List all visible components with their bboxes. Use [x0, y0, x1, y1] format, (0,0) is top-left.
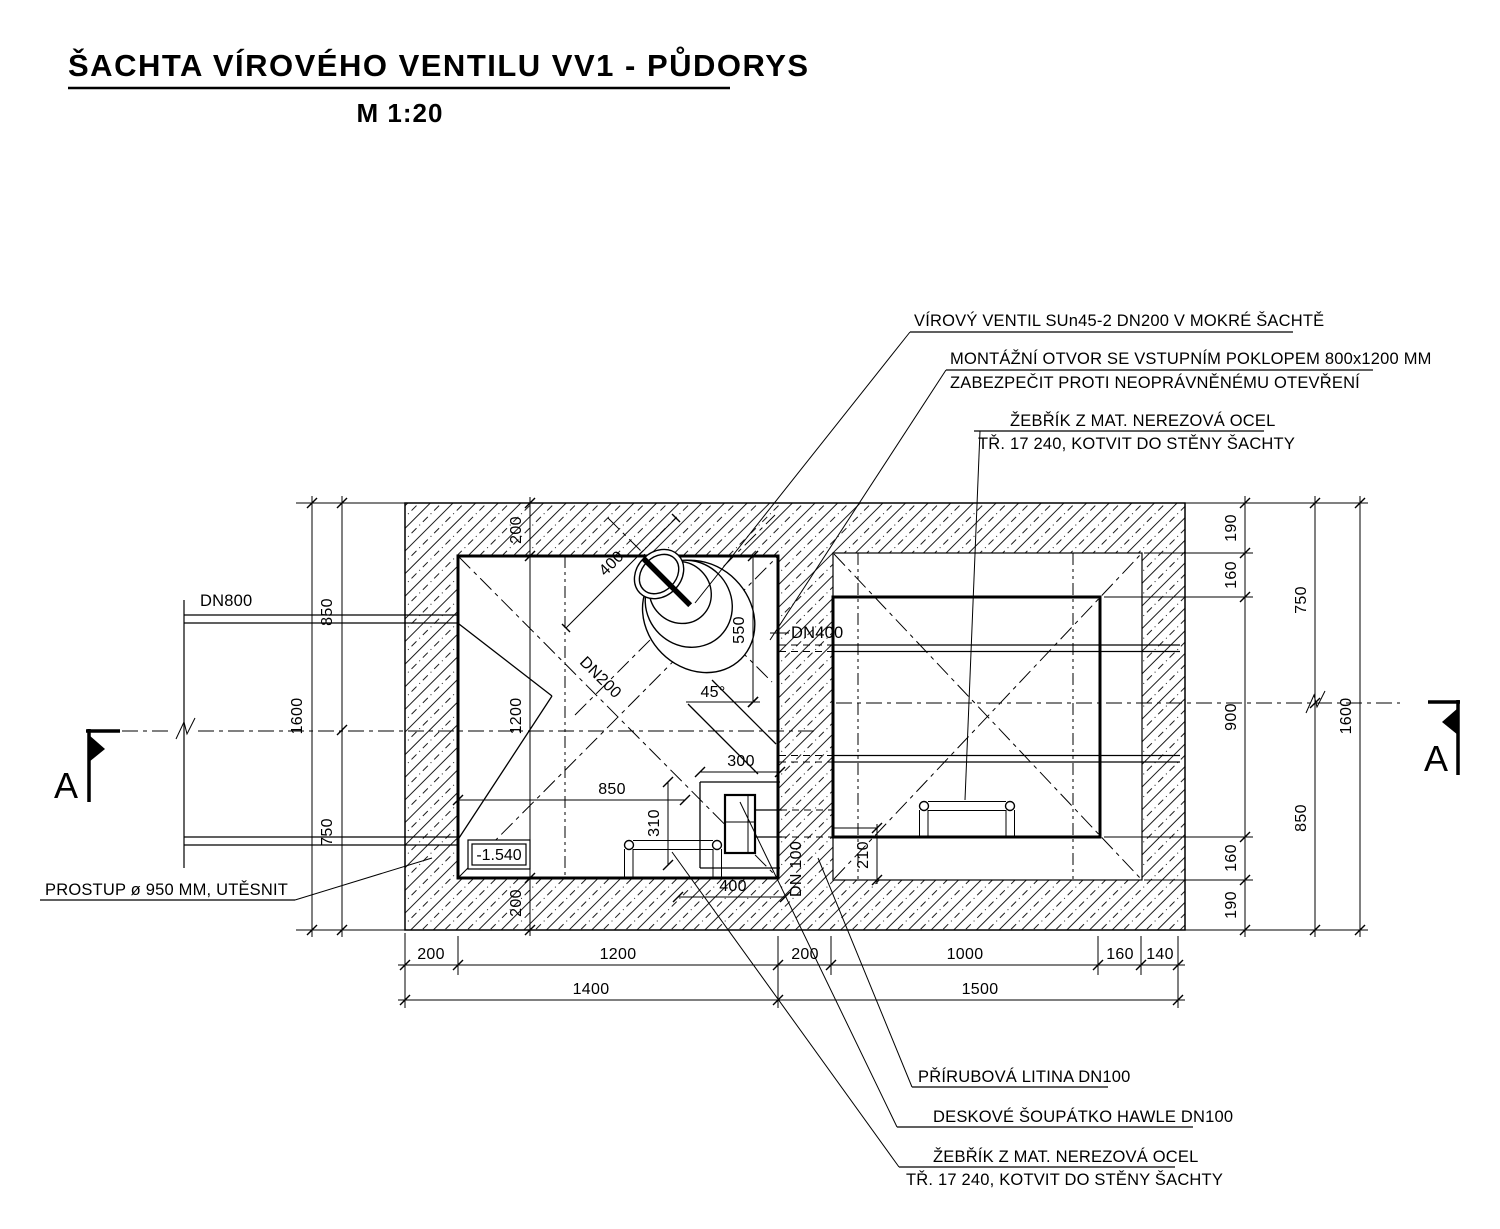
dim-angle-45: 45°	[700, 684, 725, 701]
dim-niche-400: 400	[719, 878, 747, 895]
dim-inner-200bot: 200	[508, 889, 525, 917]
dim-right-850: 850	[1293, 804, 1310, 832]
callout-flange-pipe: PŘÍRUBOVÁ LITINA DN100	[918, 1067, 1131, 1086]
callout-wall-opening: PROSTUP ø 950 MM, UTĚSNIT	[45, 880, 288, 899]
section-arrow-left	[89, 735, 105, 762]
callout-access-hatch-2: ZABEZPEČIT PROTI NEOPRÁVNĚNÉMU OTEVŘENÍ	[950, 373, 1360, 392]
callout-ladder-bottom-2: TŘ. 17 240, KOTVIT DO STĚNY ŠACHTY	[906, 1170, 1223, 1189]
dim-bottom-1400: 1400	[573, 981, 610, 998]
section-label-right: A	[1424, 738, 1448, 779]
section-marker-left: A	[54, 729, 120, 806]
dn400-label: DN400	[791, 624, 843, 642]
dn100-label: DN 100	[788, 841, 805, 897]
callout-gate-valve: DESKOVÉ ŠOUPÁTKO HAWLE DN100	[933, 1107, 1233, 1126]
dim-right-190a: 190	[1223, 514, 1240, 542]
dim-right-160a: 160	[1223, 561, 1240, 589]
callout-ladder-bottom-1: ŽEBŘÍK Z MAT. NEREZOVÁ OCEL	[933, 1147, 1198, 1166]
dim-right-900: 900	[1223, 703, 1240, 731]
dim-left-750: 750	[319, 818, 336, 846]
dim-right-190b: 190	[1223, 891, 1240, 919]
title-block: ŠACHTA VÍROVÉHO VENTILU VV1 - PŮDORYS M …	[68, 45, 810, 128]
dim-niche-850: 850	[598, 781, 626, 798]
dim-bottom-200a: 200	[417, 946, 445, 963]
level-value: -1.540	[476, 847, 521, 864]
dim-bottom-1000: 1000	[947, 946, 984, 963]
section-arrow-right	[1442, 708, 1458, 735]
callout-ladder-top-1: ŽEBŘÍK Z MAT. NEREZOVÁ OCEL	[1010, 411, 1275, 430]
dim-left-850: 850	[319, 598, 336, 626]
dim-bottom-1200: 1200	[600, 946, 637, 963]
page-title: ŠACHTA VÍROVÉHO VENTILU VV1 - PŮDORYS	[68, 45, 810, 83]
section-marker-right: A	[1424, 700, 1460, 779]
dim-bottom-200b: 200	[791, 946, 819, 963]
dim-bottom-140: 140	[1146, 946, 1174, 963]
dim-left-1600: 1600	[289, 698, 306, 735]
dim-right-160b: 160	[1223, 844, 1240, 872]
dim-bottom-1500: 1500	[962, 981, 999, 998]
technical-drawing-canvas: ŠACHTA VÍROVÉHO VENTILU VV1 - PŮDORYS M …	[0, 0, 1500, 1229]
break-symbol-left	[176, 718, 195, 739]
dimensions-bottom: 200 1200 200 1000 160 140 1400 1500	[398, 933, 1185, 1008]
callout-ladder-top-2: TŘ. 17 240, KOTVIT DO STĚNY ŠACHTY	[978, 434, 1295, 453]
dim-niche-310: 310	[646, 809, 663, 837]
dim-valve-550: 550	[731, 616, 748, 644]
section-label-left: A	[54, 765, 78, 806]
dim-inner-200top: 200	[508, 516, 525, 544]
dim-inner-1200: 1200	[508, 698, 525, 735]
callout-access-hatch-1: MONTÁŽNÍ OTVOR SE VSTUPNÍM POKLOPEM 800x…	[950, 349, 1432, 368]
dim-right-1600: 1600	[1338, 698, 1355, 735]
callout-vortex-valve: VÍROVÝ VENTIL SUn45-2 DN200 V MOKRÉ ŠACH…	[914, 311, 1324, 330]
drawing-scale: M 1:20	[357, 98, 444, 128]
level-marker: -1.540	[468, 840, 530, 869]
dim-right-750: 750	[1293, 586, 1310, 614]
drawing-page: ŠACHTA VÍROVÉHO VENTILU VV1 - PŮDORYS M …	[0, 0, 1500, 1229]
dim-bottom-160: 160	[1106, 946, 1134, 963]
dim-right-210: 210	[855, 841, 872, 869]
dim-niche-300: 300	[727, 753, 755, 770]
dn800-label: DN800	[200, 592, 252, 610]
